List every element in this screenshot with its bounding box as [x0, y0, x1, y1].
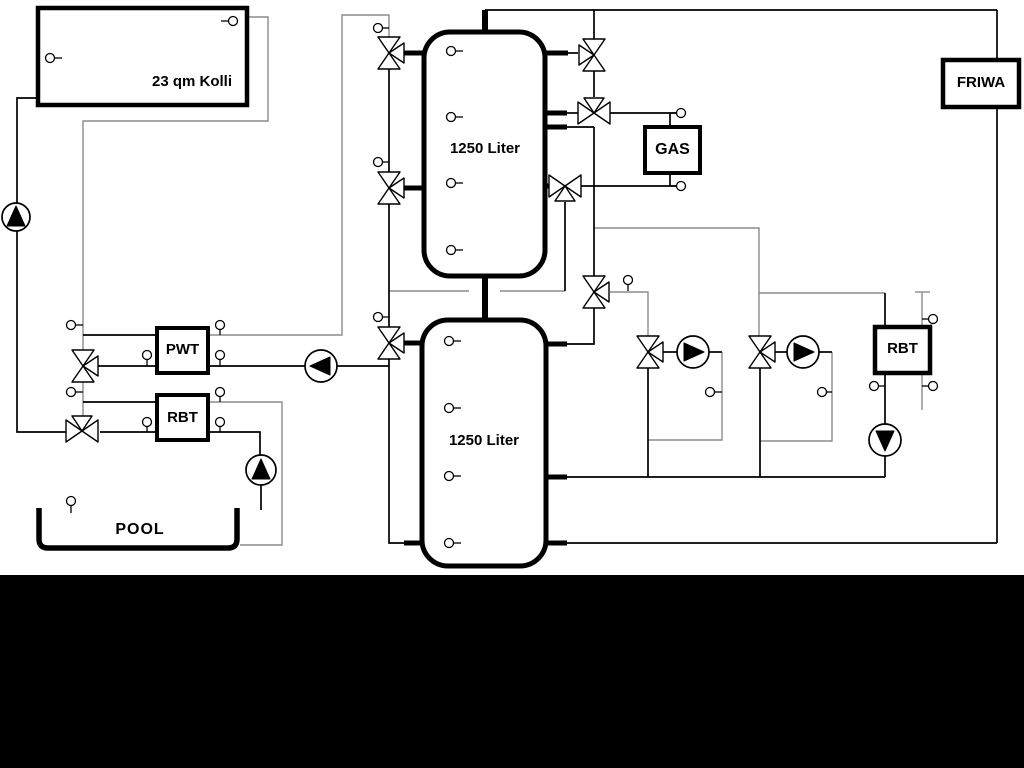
temperature-sensor-icon-22	[67, 497, 76, 514]
temperature-sensor-icon-21	[216, 418, 225, 433]
valve-solar-tank1-mid-three-way-valve-icon	[378, 172, 404, 204]
gas-label: GAS	[645, 141, 700, 159]
friwa-label: FRIWA	[943, 75, 1019, 92]
temperature-sensor-icon-28	[870, 382, 886, 391]
temperature-sensor-icon-13	[374, 313, 390, 322]
solar-pump-pump-icon	[2, 203, 30, 231]
valve-pool-supply-three-way-valve-icon	[66, 416, 98, 442]
rbt-right-label: RBT	[875, 341, 930, 358]
temperature-sensor-icon-30	[922, 382, 938, 391]
valve-heating-supply-three-way-valve-icon	[583, 276, 609, 308]
valve-mixer-2-three-way-valve-icon	[749, 336, 775, 368]
valve-gas-return-three-way-valve-icon	[549, 175, 581, 201]
collector-label: 23 qm Kolli	[140, 74, 244, 91]
component-boxes	[38, 8, 1019, 566]
schematic-page: 23 qm Kolli 1250 Liter 1250 Liter GAS FR…	[0, 0, 1024, 768]
temperature-sensor-icon-14	[67, 321, 84, 330]
valve-gas-supply-three-way-valve-icon	[578, 98, 610, 124]
temperature-sensor-icon-24	[671, 182, 686, 191]
temperature-sensor-icon-20	[216, 388, 225, 403]
tank-top-label: 1250 Liter	[435, 141, 535, 158]
temperature-sensor-icon-17	[216, 321, 225, 336]
valve-mixer-1-three-way-valve-icon	[637, 336, 663, 368]
temperature-sensor-icon-11	[374, 24, 390, 33]
valve-pwt-supply-three-way-valve-icon	[72, 350, 98, 382]
valve-solar-tank2-top-three-way-valve-icon	[378, 327, 404, 359]
valve-solar-tank1-top-three-way-valve-icon	[378, 37, 404, 69]
temperature-sensor-icon-15	[67, 388, 84, 397]
pwt-charge-pump-pump-icon	[305, 350, 337, 382]
tank-bottom-label: 1250 Liter	[434, 433, 534, 450]
rbt-left-label: RBT	[157, 410, 208, 427]
temperature-sensor-icon-25	[624, 276, 633, 292]
temperature-sensor-icon-29	[922, 315, 938, 324]
temperature-sensor-icon-18	[216, 351, 225, 367]
rbt-return-pump-pump-icon	[869, 424, 901, 456]
bottom-black-band	[0, 575, 1024, 768]
valve-gas-top-three-way-valve-icon	[579, 39, 605, 71]
temperature-sensor-icon-19	[143, 418, 152, 433]
temperature-sensor-icon-23	[671, 109, 686, 118]
pwt-label: PWT	[157, 342, 208, 359]
heating-pump-1-pump-icon	[677, 336, 709, 368]
temperature-sensor-icon-12	[374, 158, 390, 167]
temperature-sensor-icon-26	[706, 388, 723, 397]
heating-pump-2-pump-icon	[787, 336, 819, 368]
pool-pump-pump-icon	[246, 455, 276, 485]
temperature-sensor-icon-27	[818, 388, 833, 397]
pool-label: POOL	[100, 521, 180, 539]
temperature-sensor-icon-16	[143, 351, 152, 367]
